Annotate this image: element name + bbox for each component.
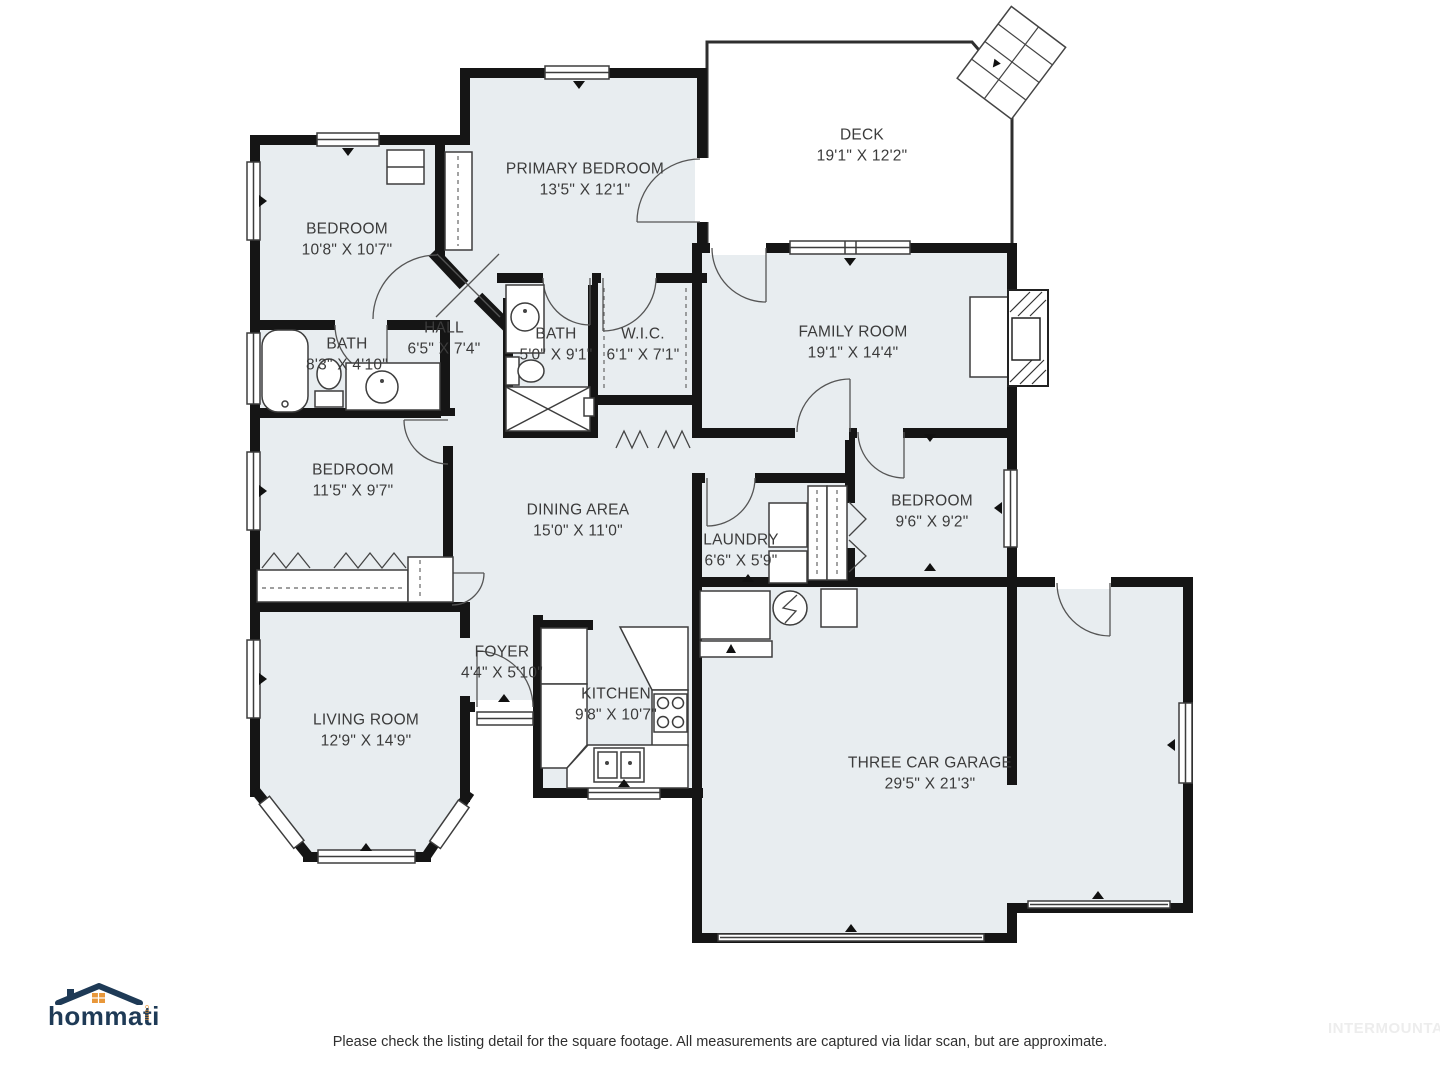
room-name: BATH [306,334,388,355]
front-stoop [477,712,533,725]
bathtub-icon [262,330,308,412]
disclaimer-text: Please check the listing detail for the … [0,1034,1440,1050]
room-name: THREE CAR GARAGE [848,753,1012,774]
room-name: PRIMARY BEDROOM [506,159,664,180]
room-label-bedroom-mid-left: BEDROOM 11'5" X 9'7" [312,460,394,503]
room-label-kitchen: KITCHEN 9'8" X 10'7" [575,684,657,727]
room-label-primary-bedroom: PRIMARY BEDROOM 13'5" X 12'1" [506,159,664,202]
shower-icon [506,387,594,431]
refrigerator-icon [541,628,587,684]
room-label-family-room: FAMILY ROOM 19'1" X 14'4" [799,322,908,365]
room-label-foyer: FOYER 4'4" X 5'10" [461,642,543,685]
watermark-text: INTERMOUNTAIN [1328,1020,1440,1037]
room-name: LIVING ROOM [313,710,419,731]
step-icon [700,641,772,657]
room-dims: 8'3" X 4'10" [306,355,388,376]
room-name: BEDROOM [891,491,973,512]
room-label-bedroom-top-left: BEDROOM 10'8" X 10'7" [302,219,393,262]
fireplace-icon [970,290,1048,386]
room-name: KITCHEN [575,684,657,705]
room-dims: 15'0" X 11'0" [527,521,630,542]
room-dims: 12'9" X 14'9" [313,731,419,752]
stove-icon [654,694,687,732]
room-name: DINING AREA [527,500,630,521]
room-dims: 9'8" X 10'7" [575,705,657,726]
room-label-garage: THREE CAR GARAGE 29'5" X 21'3" [848,753,1012,796]
room-label-dining-area: DINING AREA 15'0" X 11'0" [527,500,630,543]
room-dims: 11'5" X 9'7" [312,481,394,502]
room-dims: 6'1" X 7'1" [606,345,679,366]
room-dims: 19'1" X 14'4" [799,343,908,364]
kitchen-sink-icon [594,748,644,782]
room-dims: 13'5" X 12'1" [506,180,664,201]
room-dims: 5'0" X 9'1" [519,345,592,366]
room-name: BEDROOM [302,219,393,240]
hommati-logo: hommati com [48,983,158,1035]
room-dims: 4'4" X 5'10" [461,663,543,684]
room-name: HALL [407,318,480,339]
room-name: W.I.C. [606,324,679,345]
room-dims: 10'8" X 10'7" [302,240,393,261]
water-heater-icon [773,591,807,625]
room-label-deck: DECK 19'1" X 12'2" [817,125,908,168]
room-dims: 6'6" X 5'9" [703,551,779,572]
room-label-bath-primary: BATH 5'0" X 9'1" [519,324,592,367]
room-dims: 9'6" X 9'2" [891,512,973,533]
room-name: DECK [817,125,908,146]
room-label-hall: HALL 6'5" X 7'4" [407,318,480,361]
room-name: BATH [519,324,592,345]
room-dims: 6'5" X 7'4" [407,339,480,360]
furnace-icon [821,589,857,627]
room-name: LAUNDRY [703,530,779,551]
room-name: FAMILY ROOM [799,322,908,343]
room-dims: 19'1" X 12'2" [817,146,908,167]
room-dims: 29'5" X 21'3" [848,774,1012,795]
room-name: FOYER [461,642,543,663]
room-label-bath-left: BATH 8'3" X 4'10" [306,334,388,377]
room-name: BEDROOM [312,460,394,481]
room-label-wic: W.I.C. 6'1" X 7'1" [606,324,679,367]
floor-plan-page: DECK 19'1" X 12'2" PRIMARY BEDROOM 13'5"… [0,0,1440,1080]
cabinet-icon [700,591,770,639]
room-label-living-room: LIVING ROOM 12'9" X 14'9" [313,710,419,753]
logo-suffix: com [143,1005,150,1021]
room-label-laundry: LAUNDRY 6'6" X 5'9" [703,530,779,573]
room-label-bedroom-right: BEDROOM 9'6" X 9'2" [891,491,973,534]
